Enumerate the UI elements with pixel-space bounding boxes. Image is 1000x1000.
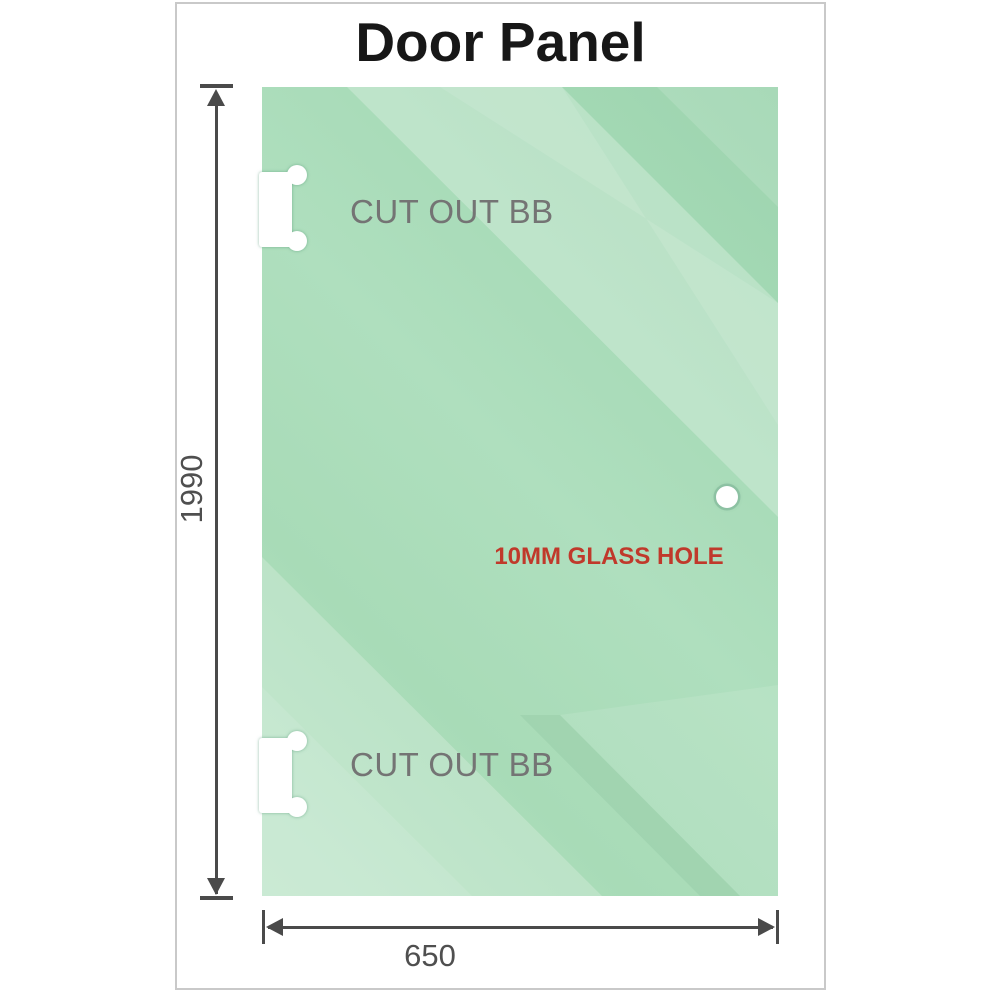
cutout-bottom-label: CUT OUT BB <box>350 746 554 784</box>
diagram-canvas: Door Panel CUT OUT BB CUT OUT BB 10MM GL… <box>0 0 1000 1000</box>
dimension-cap-left <box>262 910 265 944</box>
glass-hole <box>716 486 738 508</box>
arrow-right-icon <box>758 918 775 936</box>
width-dimension-line <box>268 926 773 929</box>
hinge-cutout-top <box>258 163 308 253</box>
dimension-cap-bottom <box>200 896 233 900</box>
hinge-cutout-bottom <box>258 729 308 819</box>
cutout-relief-hole-icon <box>287 797 307 817</box>
cutout-relief-hole-icon <box>287 165 307 185</box>
height-value-label: 1990 <box>174 455 210 524</box>
arrow-down-icon <box>207 878 225 895</box>
page-title: Door Panel <box>175 10 826 74</box>
width-value-label: 650 <box>400 938 460 974</box>
glass-panel: CUT OUT BB CUT OUT BB 10MM GLASS HOLE <box>262 87 778 896</box>
cutout-relief-hole-icon <box>287 731 307 751</box>
dimension-cap-right <box>776 910 779 944</box>
glass-hole-label: 10MM GLASS HOLE <box>494 543 723 571</box>
cutout-relief-hole-icon <box>287 231 307 251</box>
height-dimension-line <box>215 94 218 894</box>
width-dimension <box>262 910 779 948</box>
cutout-top-label: CUT OUT BB <box>350 193 554 231</box>
dimension-cap-top <box>200 84 233 88</box>
